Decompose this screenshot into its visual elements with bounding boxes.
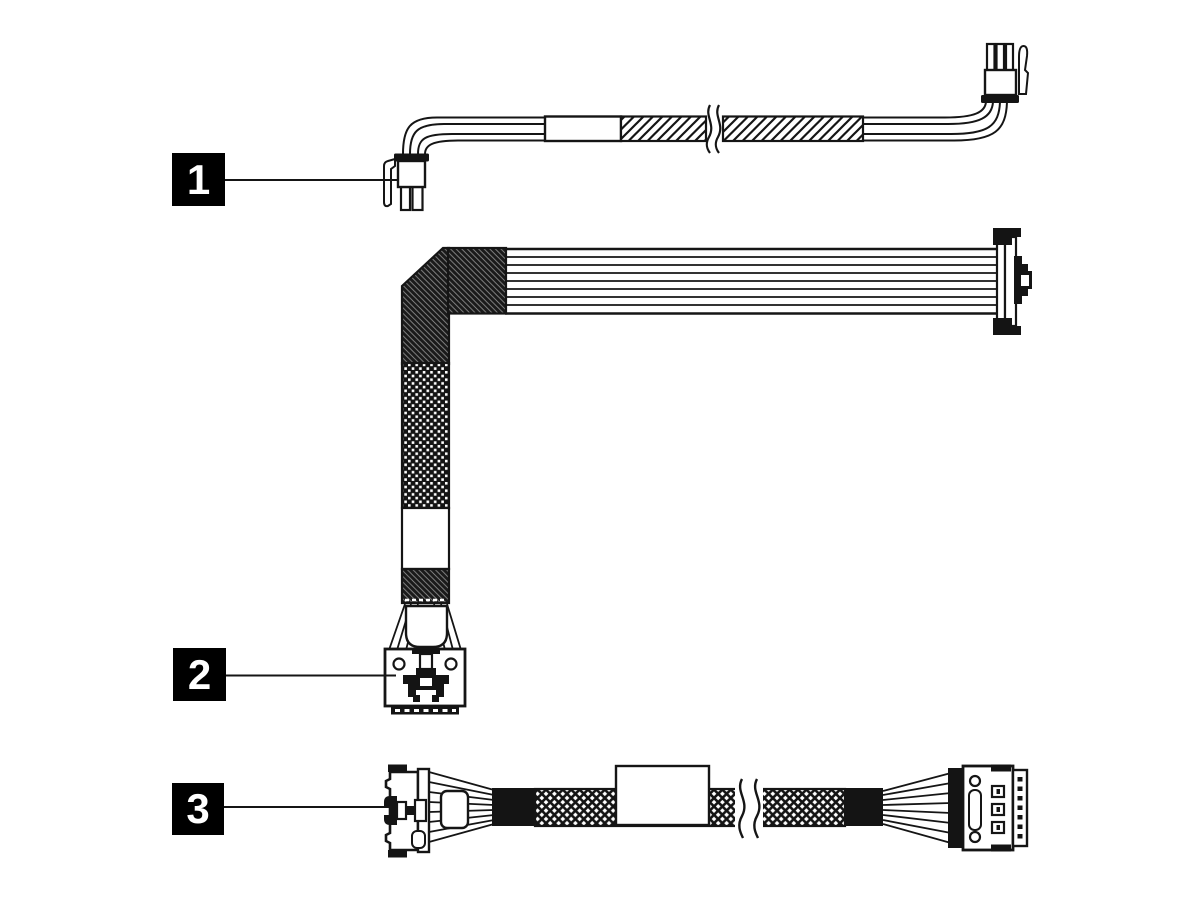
cable-1-right-latch (1019, 46, 1028, 94)
cable-2-right-latch-slot (1021, 275, 1029, 286)
cable-2-right-connector (993, 228, 1032, 335)
callout-label-3: 3 (186, 788, 209, 830)
callout-badge-3: 3 (172, 783, 224, 835)
callout-badge-1: 1 (172, 153, 225, 206)
cable-diagram-canvas: 1 2 3 (0, 0, 1200, 900)
cable-2-mesh-sleeve (402, 363, 449, 508)
cable-3-right-dark-bar (948, 768, 963, 848)
cable-3-right-connector (948, 765, 1027, 852)
cable-2-ribbon-wires (505, 249, 998, 314)
cable-1-right-body (985, 70, 1016, 95)
cable-3-latch-head (415, 800, 426, 821)
callout-label-1: 1 (187, 159, 210, 201)
cable-2-latch-stem (420, 654, 432, 669)
cable-1-left-connector (384, 154, 429, 211)
cable-3-label-band (616, 766, 709, 825)
cable-3-latch-block (406, 806, 415, 815)
cable-3-illustration (384, 765, 1027, 858)
cable-1-white-sleeve (545, 117, 621, 142)
cable-1-break-mark (707, 105, 721, 153)
cable-3-left-slot (412, 831, 425, 848)
cable-2-latch-foot (432, 695, 439, 702)
cable-3-wire-organizer (441, 791, 468, 828)
cable-3-right-fan-wires (883, 773, 951, 843)
cable-2-corner-horizontal (448, 248, 506, 314)
cable-1-left-pin (413, 187, 423, 210)
cable-2-right-bar-inner (997, 242, 1005, 321)
cable-3-left-cap-bottom (388, 850, 407, 858)
cable-3-right-notch-top (991, 765, 1011, 772)
cable-2-illustration (385, 228, 1032, 715)
cable-2-bottom-connector (385, 649, 465, 715)
cable-2-screw-hole (446, 659, 457, 670)
cable-1-right-pin (1006, 44, 1013, 71)
cable-3-left-connector (384, 765, 429, 858)
cable-3-pin-dot (997, 789, 1001, 794)
cable-2-latch-foot (413, 695, 420, 702)
cable-1-right-pin (997, 44, 1005, 71)
cable-3-latch-stem (397, 802, 406, 819)
cable-3-left-band (492, 788, 535, 826)
cable-1-left-wires (403, 118, 548, 155)
cable-1-hatched-sleeve-b (723, 117, 863, 142)
cable-3-vertical-slot (969, 790, 981, 830)
cable-1-right-pin (987, 44, 995, 71)
cable-2-wire-bundle (406, 606, 447, 647)
cable-2-lower-hatch (402, 569, 449, 603)
cable-3-right-band (845, 788, 883, 826)
cable-3-pin-dot (997, 825, 1001, 830)
cable-2-white-sleeve (402, 508, 449, 569)
cable-1-left-body (398, 161, 425, 187)
cable-3-left-cap-top (388, 765, 407, 773)
cable-1-right-wires (863, 102, 1007, 141)
cable-3-screw-hole (970, 832, 980, 842)
cable-1-illustration (384, 44, 1028, 210)
cable-2-latch-collar (416, 668, 436, 675)
cable-1-left-pin (401, 187, 410, 210)
cable-3-screw-hole (970, 776, 980, 786)
callout-badge-2: 2 (173, 648, 226, 701)
callout-label-2: 2 (188, 654, 211, 696)
cable-3-pin-dot (997, 807, 1001, 812)
cable-3-right-notch-bottom (991, 845, 1011, 852)
cable-2-latch-slot (420, 678, 432, 686)
cable-1-left-latch (384, 159, 395, 206)
cable-1-hatched-sleeve-a (621, 117, 706, 142)
cable-2-screw-hole (394, 659, 405, 670)
cable-2-corner-fold (402, 248, 449, 364)
cable-1-left-cap (394, 154, 429, 162)
cable-diagram (0, 0, 1200, 900)
cable-1-right-cap (981, 95, 1019, 103)
cable-1-right-connector (981, 44, 1028, 103)
